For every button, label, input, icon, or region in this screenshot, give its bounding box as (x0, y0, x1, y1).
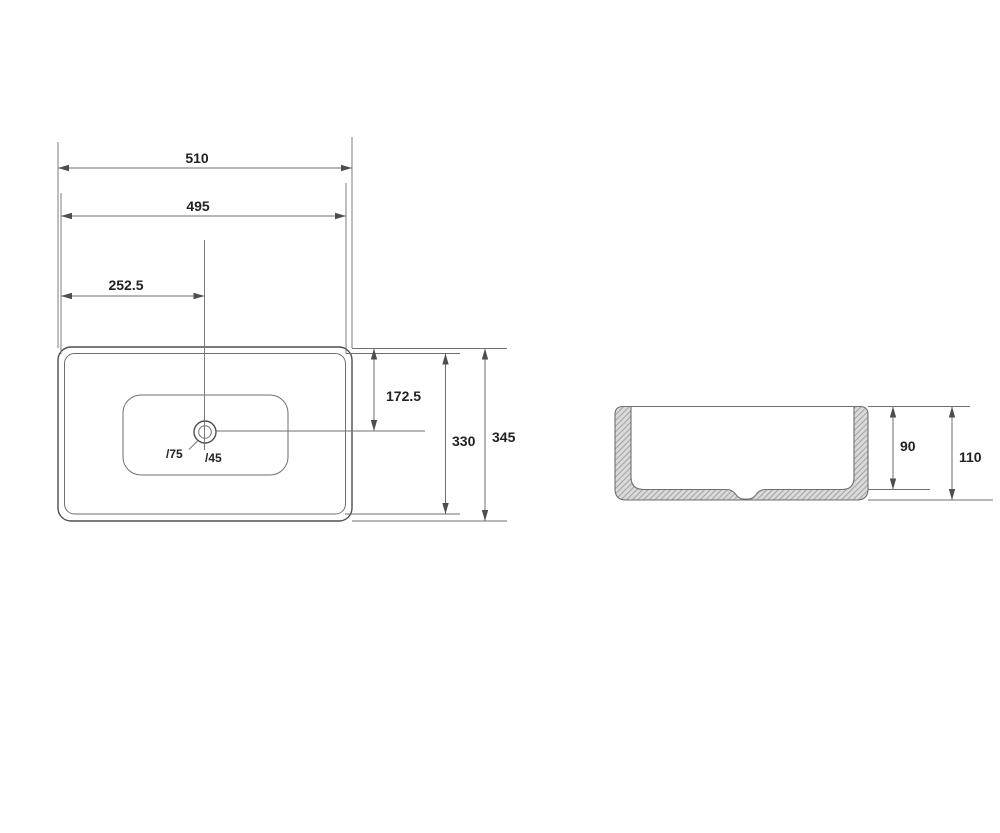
plan-view: 510 495 252.5 172.5 330 345 /75 /45 (58, 137, 516, 521)
technical-drawing-canvas: 510 495 252.5 172.5 330 345 /75 /45 90 1… (0, 0, 1000, 833)
basin-dimension-drawing: 510 495 252.5 172.5 330 345 /75 /45 90 1… (0, 0, 1000, 833)
dim-172-5-label: 172.5 (386, 388, 421, 404)
dim-252-5-label: 252.5 (108, 277, 143, 293)
section-view: 90 110 (615, 407, 993, 501)
section-body (615, 407, 868, 501)
drain-inner-circle (199, 426, 212, 439)
dim-345-label: 345 (492, 429, 516, 445)
dim-495-label: 495 (186, 198, 210, 214)
plan-rim-outline (65, 354, 346, 515)
drain-outer-circle (194, 421, 216, 443)
drain-overflow-label: /75 (166, 447, 183, 461)
plan-outer-outline (58, 347, 352, 521)
dim-510-label: 510 (185, 150, 209, 166)
dim-330-label: 330 (452, 433, 476, 449)
dim-110-label: 110 (959, 449, 982, 465)
overflow-leader-line (189, 441, 198, 450)
dim-90-label: 90 (900, 438, 916, 454)
drain-waste-label: /45 (205, 451, 222, 465)
